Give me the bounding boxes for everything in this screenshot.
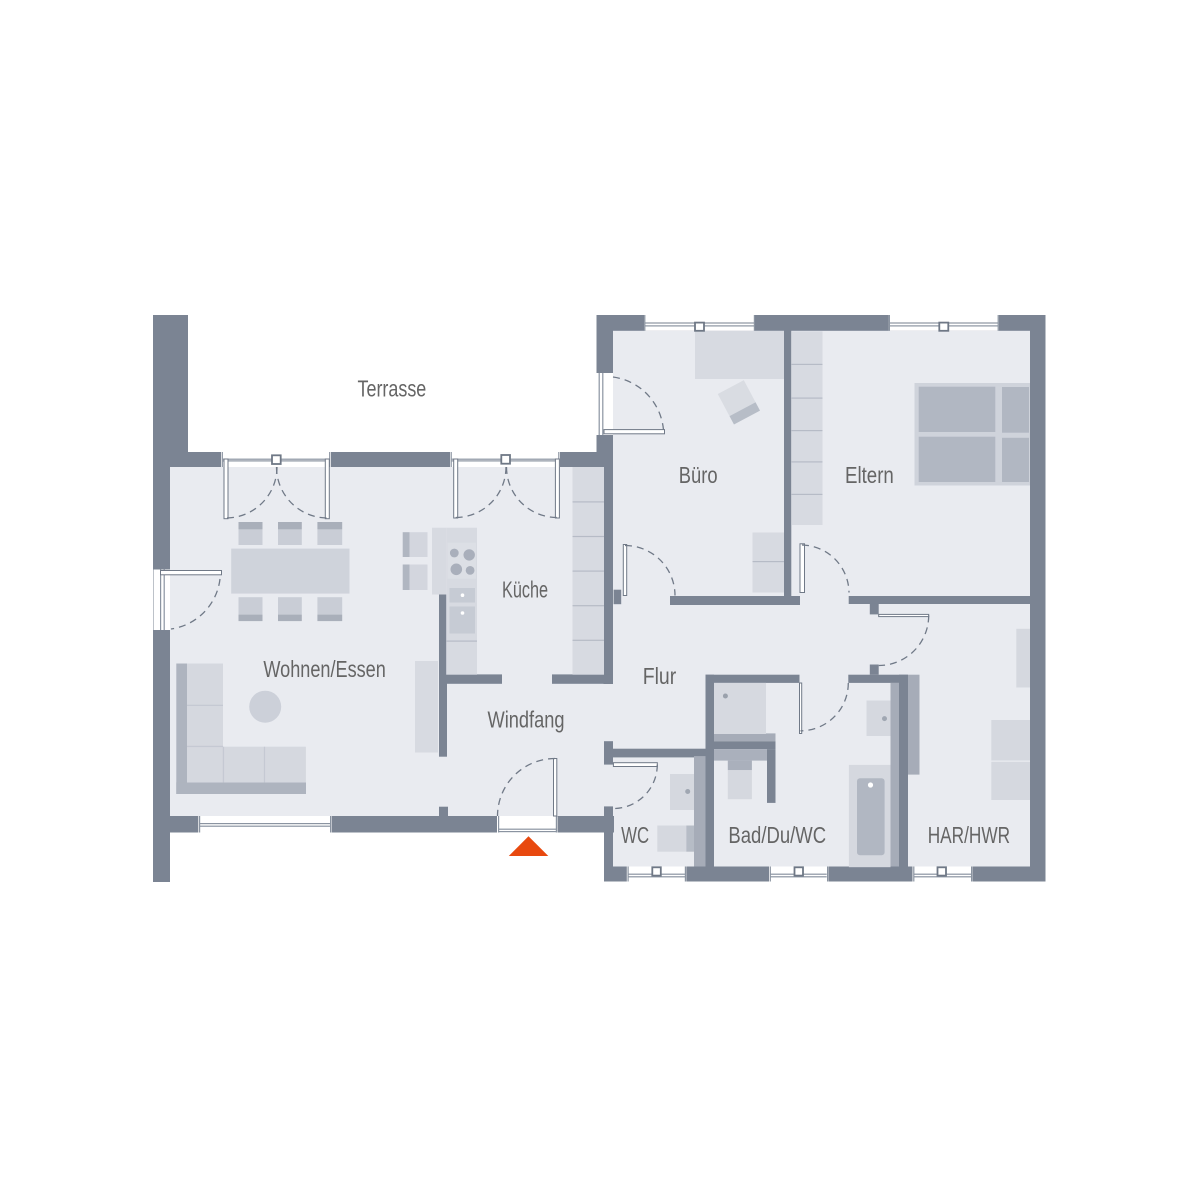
svg-text:Eltern: Eltern <box>845 462 894 488</box>
svg-text:Windfang: Windfang <box>488 707 565 733</box>
svg-text:Terrasse: Terrasse <box>358 375 427 401</box>
svg-text:Büro: Büro <box>679 462 718 488</box>
svg-text:Küche: Küche <box>502 577 548 603</box>
svg-text:Flur: Flur <box>643 663 677 689</box>
svg-text:Bad/Du/WC: Bad/Du/WC <box>728 822 826 848</box>
svg-text:Wohnen/Essen: Wohnen/Essen <box>263 656 385 682</box>
svg-text:HAR/HWR: HAR/HWR <box>928 822 1010 848</box>
svg-text:WC: WC <box>621 822 649 848</box>
